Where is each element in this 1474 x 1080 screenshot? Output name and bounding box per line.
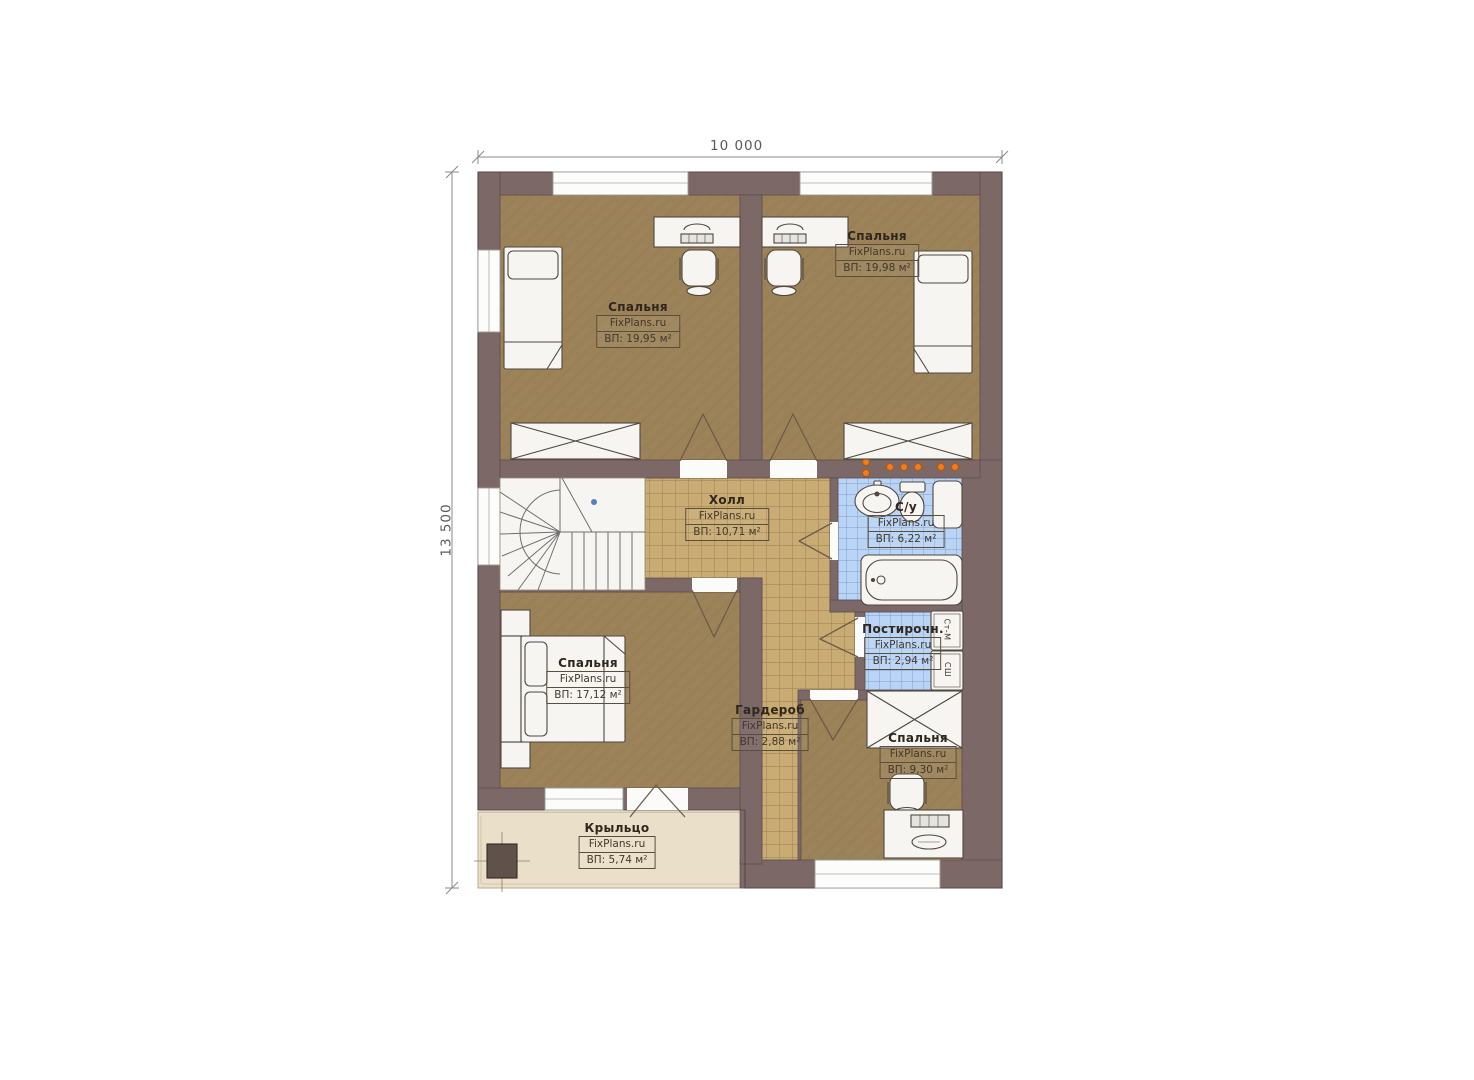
room-name: Спальня: [835, 229, 919, 243]
watermark-text: FixPlans.ru: [836, 245, 918, 261]
room-area-text: ВП: 10,71 м²: [686, 525, 768, 540]
room-area-text: ВП: 19,98 м²: [836, 261, 918, 276]
room-area-text: ВП: 17,12 м²: [547, 688, 629, 703]
room-info-box: FixPlans.ru ВП: 17,12 м²: [546, 671, 630, 704]
room-area-text: ВП: 5,74 м²: [580, 853, 655, 868]
stairs-marker-dot: [591, 499, 597, 505]
watermark-text: FixPlans.ru: [733, 719, 808, 735]
room-area-text: ВП: 2,94 м²: [866, 654, 941, 669]
room-info-box: FixPlans.ru ВП: 5,74 м²: [579, 836, 656, 869]
wardrobe-symbol-top-right: [844, 423, 972, 459]
room-info-box: FixPlans.ru ВП: 2,88 м²: [732, 718, 809, 751]
room-label-laundry: Постирочн. FixPlans.ru ВП: 2,94 м²: [862, 622, 944, 670]
room-label-bedroom-bottom-left: Спальня FixPlans.ru ВП: 17,12 м²: [546, 656, 630, 704]
room-name: Постирочн.: [862, 622, 944, 636]
watermark-text: FixPlans.ru: [881, 747, 956, 763]
door-gap-bathroom: [830, 522, 838, 560]
dimension-height-label: 13 500: [439, 503, 455, 556]
door-gap-bedroom-tr: [770, 460, 817, 478]
window-top-right: [800, 172, 932, 195]
room-name: Спальня: [546, 656, 630, 670]
wall-right-lower: [962, 460, 1002, 888]
bathtub-symbol: [861, 555, 962, 605]
watermark-text: FixPlans.ru: [547, 672, 629, 688]
room-label-wardrobe: Гардероб FixPlans.ru ВП: 2,88 м²: [732, 703, 809, 751]
room-area-text: ВП: 19,95 м²: [597, 332, 679, 347]
room-info-box: FixPlans.ru ВП: 9,30 м²: [880, 746, 957, 779]
room-label-bathroom: С/у FixPlans.ru ВП: 6,22 м²: [868, 500, 945, 548]
room-label-bedroom-top-right: Спальня FixPlans.ru ВП: 19,98 м²: [835, 229, 919, 277]
room-name: Спальня: [880, 731, 957, 745]
room-area-text: ВП: 9,30 м²: [881, 763, 956, 778]
wall-center-top: [740, 195, 762, 460]
room-info-box: FixPlans.ru ВП: 6,22 м²: [868, 515, 945, 548]
bed-symbol-top-left: [504, 247, 562, 369]
watermark-text: FixPlans.ru: [866, 638, 941, 654]
room-name: Гардероб: [732, 703, 809, 717]
washing-machine-label: Ст-М: [943, 618, 952, 640]
staircase: [500, 478, 645, 590]
room-name: С/у: [868, 500, 945, 514]
door-gap-bedroom-tl: [680, 460, 727, 478]
dimension-width-label: 10 000: [710, 138, 763, 154]
door-gap-entrance: [627, 788, 688, 810]
room-info-box: FixPlans.ru ВП: 19,95 м²: [596, 315, 680, 348]
room-name: Холл: [685, 493, 769, 507]
room-label-bedroom-top-left: Спальня FixPlans.ru ВП: 19,95 м²: [596, 300, 680, 348]
door-gap-bedroom-bl: [692, 578, 737, 592]
room-name: Крыльцо: [579, 821, 656, 835]
window-top-left: [553, 172, 688, 195]
desk-symbol-top-left: [654, 217, 740, 247]
watermark-text: FixPlans.ru: [580, 837, 655, 853]
desk-symbol-bottom-right: [884, 810, 963, 858]
room-area-text: ВП: 6,22 м²: [869, 532, 944, 547]
wall-mid-horizontal: [500, 460, 980, 478]
watermark-text: FixPlans.ru: [869, 516, 944, 532]
room-info-box: FixPlans.ru ВП: 2,94 м²: [865, 637, 942, 670]
wardrobe-symbol-top-left: [511, 423, 640, 459]
wall-right-upper: [980, 172, 1002, 472]
door-gap-bedroom-br: [810, 690, 858, 700]
room-info-box: FixPlans.ru ВП: 19,98 м²: [835, 244, 919, 277]
watermark-text: FixPlans.ru: [597, 316, 679, 332]
room-label-porch: Крыльцо FixPlans.ru ВП: 5,74 м²: [579, 821, 656, 869]
watermark-text: FixPlans.ru: [686, 509, 768, 525]
room-name: Спальня: [596, 300, 680, 314]
room-area-text: ВП: 2,88 м²: [733, 735, 808, 750]
room-label-bedroom-bottom-right: Спальня FixPlans.ru ВП: 9,30 м²: [880, 731, 957, 779]
room-info-box: FixPlans.ru ВП: 10,71 м²: [685, 508, 769, 541]
dryer-label: СШ: [943, 662, 952, 677]
bed-symbol-top-right: [914, 251, 972, 373]
floor-plan-canvas: 10 000 13 500 Спальня FixPlans.ru ВП: 19…: [0, 0, 1474, 1080]
room-label-hall: Холл FixPlans.ru ВП: 10,71 м²: [685, 493, 769, 541]
